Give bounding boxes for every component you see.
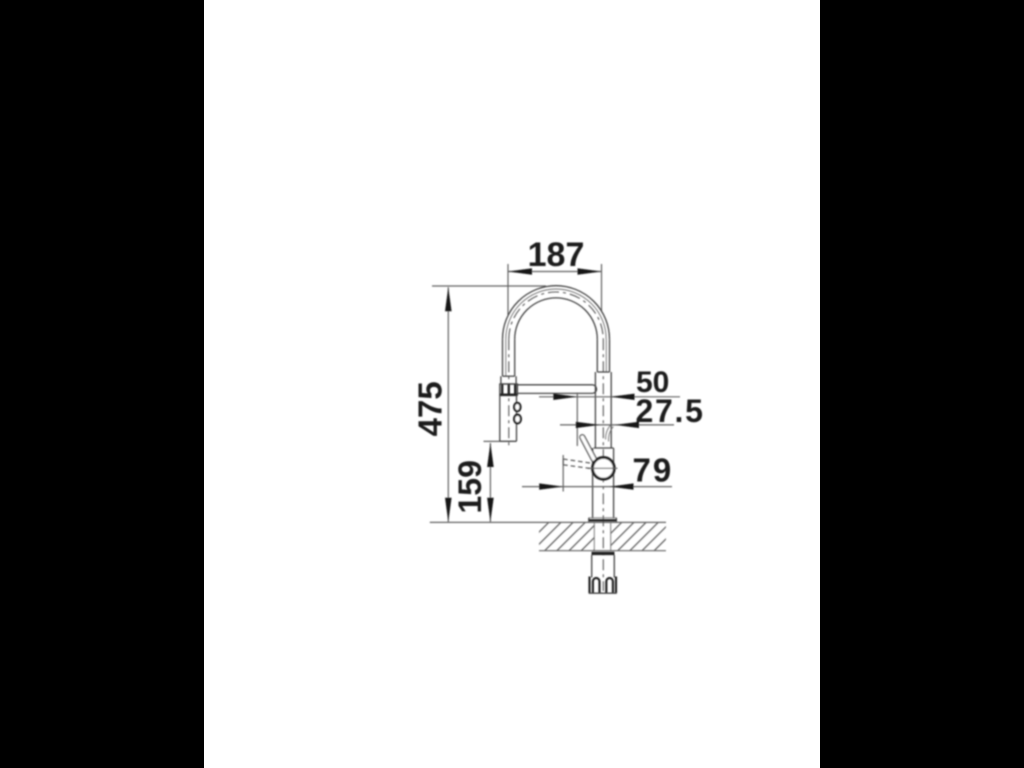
svg-text:187: 187 (528, 236, 585, 274)
svg-text:79: 79 (633, 452, 674, 489)
svg-text:27.5: 27.5 (636, 393, 705, 429)
svg-text:159: 159 (452, 460, 488, 513)
svg-text:475: 475 (411, 381, 448, 436)
